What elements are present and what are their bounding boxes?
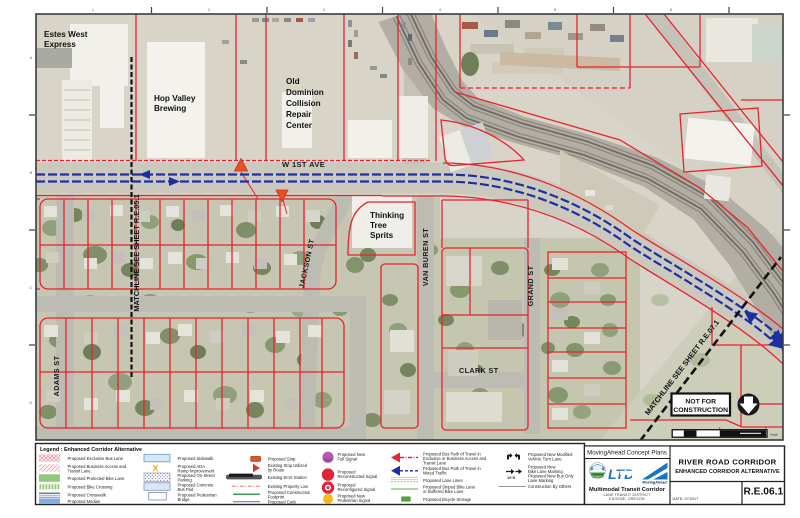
svg-text:Center: Center <box>286 121 313 130</box>
svg-text:Repair: Repair <box>286 110 312 119</box>
svg-text:Brewing: Brewing <box>154 104 186 113</box>
svg-text:Thinking: Thinking <box>370 211 404 220</box>
svg-text:ENHANCED CORRIDOR ALTERNATIVE: ENHANCED CORRIDOR ALTERNATIVE <box>675 469 780 475</box>
svg-text:Proposed Median: Proposed Median <box>68 499 101 504</box>
svg-text:MovingAhead Concept Plans: MovingAhead Concept Plans <box>587 450 667 457</box>
svg-text:NOT FOR: NOT FOR <box>685 398 716 405</box>
svg-text:Existing Property Line: Existing Property Line <box>268 484 309 489</box>
svg-text:R.E.06.1: R.E.06.1 <box>743 487 783 498</box>
svg-text:C: C <box>30 285 33 290</box>
svg-text:Lane Marking: Lane Marking <box>528 478 554 483</box>
svg-text:Transit Lane: Transit Lane <box>68 468 92 473</box>
svg-text:Reconfigured Signal: Reconfigured Signal <box>338 487 376 492</box>
svg-text:Dominion: Dominion <box>286 88 324 97</box>
svg-text:by Route: by Route <box>268 467 285 472</box>
svg-text:GRAND ST: GRAND ST <box>526 265 535 306</box>
svg-text:Tree: Tree <box>370 221 387 230</box>
svg-text:or Buffered Bike Lane: or Buffered Bike Lane <box>423 489 464 494</box>
svg-text:Transit Lane: Transit Lane <box>423 460 447 465</box>
svg-text:A: A <box>30 55 33 60</box>
svg-text:MovingAhead: MovingAhead <box>642 481 667 485</box>
svg-text:19 R: 19 R <box>507 475 516 480</box>
svg-text:Proposed Sidewalk: Proposed Sidewalk <box>178 456 215 461</box>
svg-text:Legend : Enhanced Corridor Alt: Legend : Enhanced Corridor Alternative <box>40 447 142 453</box>
svg-text:Proposed Protected Bike Lane: Proposed Protected Bike Lane <box>68 476 125 481</box>
svg-text:Feet: Feet <box>771 433 778 437</box>
svg-text:EUGENE, OREGON: EUGENE, OREGON <box>609 497 645 501</box>
svg-text:Mixed Traffic: Mixed Traffic <box>423 470 447 475</box>
svg-text:Existing EmX Station: Existing EmX Station <box>268 475 308 480</box>
svg-text:Bridge: Bridge <box>178 497 191 502</box>
svg-text:Bus Pad: Bus Pad <box>178 487 195 492</box>
svg-text:Proposed Lane Lines: Proposed Lane Lines <box>423 478 463 483</box>
svg-text:D: D <box>30 400 33 405</box>
svg-text:CLARK ST: CLARK ST <box>459 366 499 375</box>
svg-text:Proposed Bicycle Storage: Proposed Bicycle Storage <box>423 497 472 502</box>
svg-text:Proposed Stop: Proposed Stop <box>268 456 296 461</box>
svg-text:Hop Valley: Hop Valley <box>154 94 196 103</box>
svg-text:MATCHLINE SEE SHEET R.E.05.1: MATCHLINE SEE SHEET R.E.05.1 <box>132 194 141 311</box>
svg-text:B: B <box>30 170 33 175</box>
svg-text:CONSTRUCTION: CONSTRUCTION <box>673 407 728 414</box>
svg-text:Proposed Curb: Proposed Curb <box>268 499 297 504</box>
svg-text:Proposed Exclusive Bus Lane: Proposed Exclusive Bus Lane <box>68 456 124 461</box>
svg-text:Express: Express <box>44 40 76 49</box>
svg-text:Estes West: Estes West <box>44 30 88 39</box>
svg-text:Reconstructed Signal: Reconstructed Signal <box>338 474 378 479</box>
svg-text:VAN BUREN ST: VAN BUREN ST <box>421 228 430 286</box>
svg-text:DATE: 07/2017: DATE: 07/2017 <box>673 497 699 501</box>
svg-text:X: X <box>153 464 159 474</box>
svg-text:Proposed Bike Crossing: Proposed Bike Crossing <box>68 485 114 490</box>
svg-text:Construction By Others: Construction By Others <box>528 484 571 489</box>
svg-text:Eugene: Eugene <box>593 474 603 478</box>
svg-text:Collision: Collision <box>286 99 321 108</box>
svg-text:RIVER ROAD CORRIDOR: RIVER ROAD CORRIDOR <box>679 458 777 467</box>
svg-text:ADAMS ST: ADAMS ST <box>52 355 61 396</box>
svg-text:Proposed Crosswalk: Proposed Crosswalk <box>68 492 107 497</box>
svg-text:Vehicle Turn Lane: Vehicle Turn Lane <box>528 457 562 462</box>
svg-text:W 1ST AVE: W 1ST AVE <box>282 160 325 169</box>
svg-text:Full Signal: Full Signal <box>338 457 358 462</box>
svg-text:Sprits: Sprits <box>370 231 394 240</box>
svg-text:Pedestrian Signal: Pedestrian Signal <box>338 498 371 503</box>
svg-text:Old: Old <box>286 77 300 86</box>
